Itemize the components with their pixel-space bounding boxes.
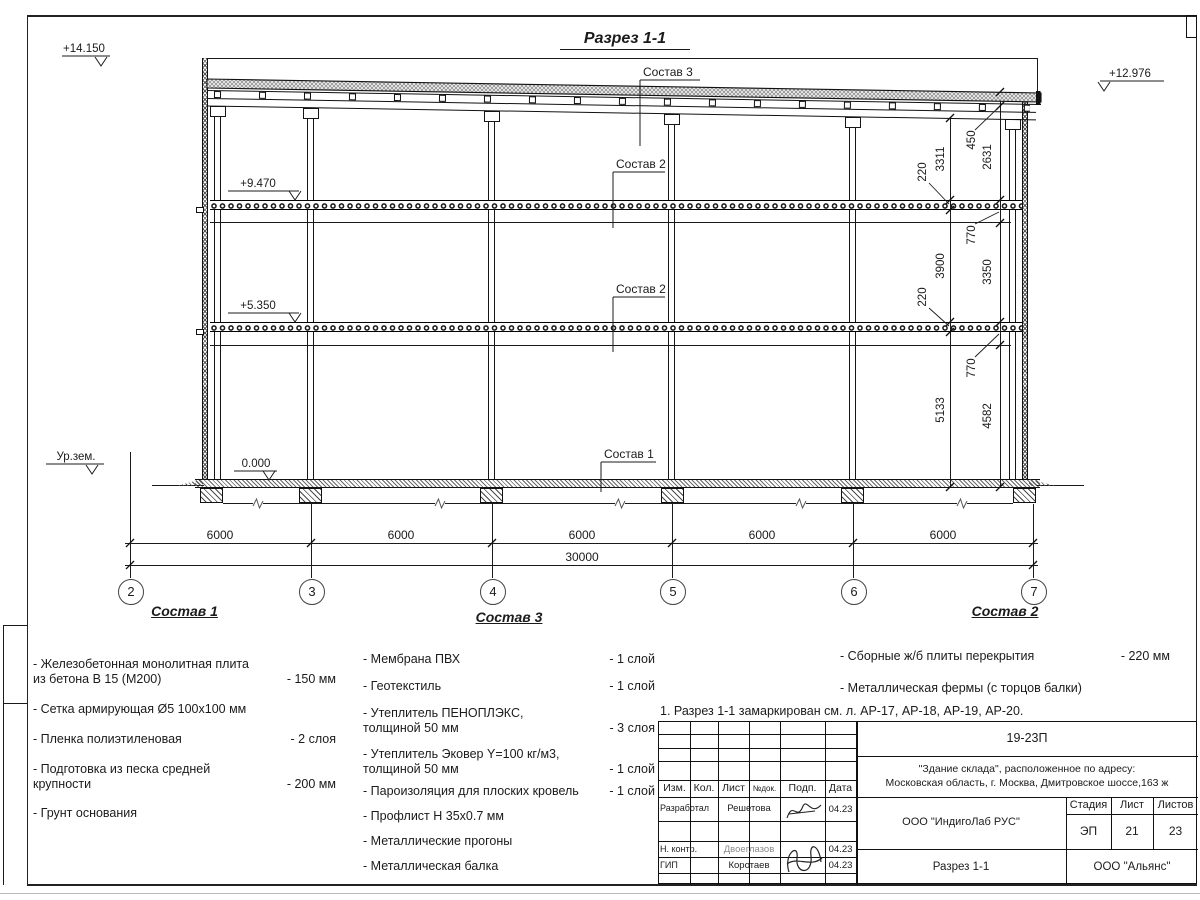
tb-stage: ЭП <box>1066 824 1111 838</box>
leader-slab-lower-composition: Состав 2 <box>616 282 666 296</box>
composition-list-3: Состав 3 - Мембрана ПВХ- 1 слой - Геотек… <box>363 610 655 874</box>
tb-col-data: Дата <box>825 782 856 794</box>
tb-doc-code: 19-23П <box>856 731 1198 745</box>
dimension-ticks <box>126 88 1037 569</box>
axis-bubble: 2 <box>118 579 144 605</box>
dim-vertical: 3311 <box>934 137 948 181</box>
composition-title: Состав 3 <box>363 610 655 625</box>
tb-date: 04.23 <box>825 804 856 815</box>
material-value: - 2 слоя <box>291 732 336 747</box>
material: - Пароизоляция для плоских кровель <box>363 784 579 799</box>
tb-date: 04.23 <box>825 860 856 871</box>
tb-sheets-total: 23 <box>1153 824 1198 838</box>
dim-bay: 6000 <box>552 528 612 542</box>
signature-icon <box>781 834 825 882</box>
signature-icon <box>781 798 825 824</box>
tb-client: ООО "Альянс" <box>1066 861 1198 873</box>
material: - Металлические прогоны <box>363 834 512 849</box>
roof-fascia <box>1036 91 1041 105</box>
drawing-sheet: Разрез 1-1 <box>0 0 1200 900</box>
tb-sheets-label: Листов <box>1153 799 1198 811</box>
tb-col-izm: Изм. <box>659 782 690 794</box>
tb-name: Решетова <box>718 803 780 814</box>
composition-title: Состав 1 <box>33 604 336 619</box>
material: - Сетка армирующая Ø5 100x100 мм <box>33 702 246 717</box>
material: - Профлист Н 35х0.7 мм <box>363 809 504 824</box>
material-value: - 1 слой <box>609 762 655 777</box>
tb-role: Н. контр. <box>660 844 718 854</box>
material-value: - 1 слой <box>609 784 655 799</box>
tb-col-dok: №док. <box>749 784 780 793</box>
material-value: - 3 слоя <box>610 721 655 736</box>
leader-slab-upper-composition: Состав 2 <box>616 157 666 171</box>
dim-vertical: 770 <box>965 213 979 257</box>
tb-sheet-no: 21 <box>1111 824 1153 838</box>
material: - Железобетонная монолитная плита из бет… <box>33 657 249 687</box>
tb-name: Двоеглазов <box>718 844 780 855</box>
tb-project: "Здание склада", расположенное по адресу… <box>856 762 1198 790</box>
tb-role: ГИП <box>660 860 718 870</box>
material: - Утеплитель ПЕНОПЛЭКС, толщиной 50 мм <box>363 706 523 736</box>
dim-total: 30000 <box>551 550 613 564</box>
composition-list-2: Состав 2 - Сборные ж/б плиты перекрытия-… <box>840 604 1170 696</box>
material-value: - 220 мм <box>1121 649 1170 664</box>
material-value: - 200 мм <box>287 777 336 792</box>
tb-date: 04.23 <box>825 844 856 855</box>
dim-bay: 6000 <box>732 528 792 542</box>
elevation-slab-upper: +9.470 <box>232 178 284 190</box>
material: - Металлическая фермы (с торцов балки) <box>840 681 1082 696</box>
dim-bay: 6000 <box>913 528 973 542</box>
tb-designer: ООО "ИндигоЛаб РУС" <box>856 816 1066 828</box>
break-marks <box>253 497 967 509</box>
tb-col-kol: Кол. <box>690 782 718 794</box>
dim-vertical: 3350 <box>981 250 995 294</box>
material: - Грунт основания <box>33 806 137 821</box>
note-text: 1. Разрез 1-1 замаркирован см. л. АР-17,… <box>660 704 1023 718</box>
material: - Подготовка из песка средней крупности <box>33 762 210 792</box>
dim-bay: 6000 <box>371 528 431 542</box>
material: - Геотекстиль <box>363 679 441 694</box>
dim-vertical: 3900 <box>934 244 948 288</box>
tb-stage-label: Стадия <box>1066 799 1111 811</box>
material-value: - 1 слой <box>609 652 655 667</box>
tb-name: Коротаев <box>718 860 780 871</box>
axis-bubble: 5 <box>660 579 686 605</box>
dim-vertical: 4582 <box>981 394 995 438</box>
material: - Металлическая балка <box>363 859 498 874</box>
material-value: - 1 слой <box>609 679 655 694</box>
axis-bubble: 3 <box>299 579 325 605</box>
roof-assembly <box>207 79 1041 120</box>
tb-role: Разработал <box>660 803 718 813</box>
material: - Мембрана ПВХ <box>363 652 460 667</box>
tb-col-podp: Подп. <box>780 782 825 794</box>
material: - Утеплитель Эковер Y=100 кг/м3, толщино… <box>363 747 559 777</box>
composition-list-1: Состав 1 - Железобетонная монолитная пли… <box>33 604 336 821</box>
title-block: Изм. Кол. Лист №док. Подп. Дата Разработ… <box>658 721 1197 884</box>
dim-vertical: 770 <box>965 346 979 390</box>
dim-vertical: 450 <box>965 118 979 162</box>
elevation-parapet: +14.150 <box>60 43 108 55</box>
dim-vertical: 220 <box>916 150 930 194</box>
elevation-slab-lower: +5.350 <box>232 300 284 312</box>
axis-bubble: 4 <box>480 579 506 605</box>
elevation-floor: 0.000 <box>236 458 276 470</box>
tb-sheet-label: Лист <box>1111 799 1153 811</box>
dim-bay: 6000 <box>190 528 250 542</box>
axis-bubble: 7 <box>1021 579 1047 605</box>
composition-title: Состав 2 <box>840 604 1170 619</box>
dim-vertical: 220 <box>916 275 930 319</box>
material: - Пленка полиэтиленовая <box>33 732 182 747</box>
dim-vertical: 2631 <box>981 135 995 179</box>
axis-bubble: 6 <box>841 579 867 605</box>
ground-level-label: Ур.зем. <box>48 451 104 463</box>
dim-vertical: 5133 <box>934 388 948 432</box>
leader-roof-composition: Состав 3 <box>643 65 693 79</box>
tb-drawing-name: Разрез 1-1 <box>856 861 1066 873</box>
elevation-roof-right: +12.976 <box>1102 68 1158 80</box>
leader-floor-composition: Состав 1 <box>604 447 654 461</box>
material: - Сборные ж/б плиты перекрытия <box>840 649 1034 664</box>
material-value: - 150 мм <box>287 672 336 687</box>
tb-col-list: Лист <box>718 782 749 794</box>
